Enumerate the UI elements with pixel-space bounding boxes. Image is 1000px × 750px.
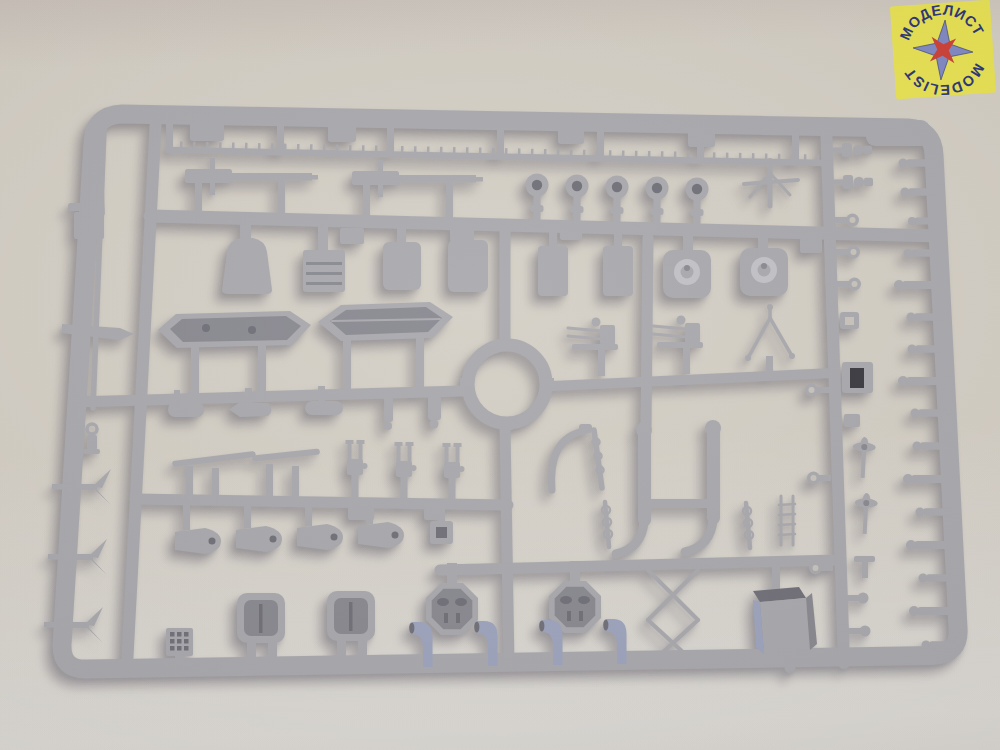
ball-capstan-pin-part xyxy=(894,280,944,290)
yardarm-part xyxy=(252,448,320,498)
ringed-signal-pole-part xyxy=(602,502,612,547)
stepped-bollard-part xyxy=(834,175,873,189)
ball-capstan-pin-part xyxy=(898,376,948,386)
eyelet-ring-part xyxy=(805,384,829,397)
gun-pedestal-mount-part xyxy=(222,218,272,294)
ladder-part xyxy=(779,496,795,545)
turret-base-with-cap-part xyxy=(740,232,788,296)
ball-capstan-pin-part xyxy=(908,345,946,354)
ring-platform-part xyxy=(460,340,554,430)
eyelet-ring-part xyxy=(835,214,859,227)
davit-pair-frame-part xyxy=(616,420,721,554)
paravane-part xyxy=(297,501,343,550)
naval-gun-barrel-part xyxy=(352,160,483,222)
runner-vertical-center-b xyxy=(505,428,509,665)
ball-capstan-pin-part xyxy=(913,442,951,451)
paravane-part xyxy=(236,503,282,552)
yardarm-part xyxy=(172,451,256,498)
twin-aa-gun-mount-part xyxy=(346,440,368,500)
twin-aa-gun-mount-part xyxy=(395,442,417,502)
propeller-on-shaft-part xyxy=(853,492,878,534)
ball-fitting-part xyxy=(845,593,869,604)
brand-sticker: МОДЕЛИСТ MODELIST xyxy=(890,0,996,101)
ball-capstan-pin-part xyxy=(922,641,960,650)
runner-vertical-left xyxy=(127,116,156,666)
runner-vertical-centerright xyxy=(646,238,648,426)
anchor-swivel-part xyxy=(83,424,100,454)
sprue-frame-group xyxy=(44,112,959,674)
torpedo-shaped-fitting-part xyxy=(384,396,441,430)
ball-fitting-part xyxy=(847,626,871,637)
sprue-illustration: МОДЕЛИСТ MODELIST xyxy=(0,0,1000,750)
gun-pedestal-mount-part xyxy=(603,230,633,296)
ringed-signal-pole-part xyxy=(743,503,753,548)
paravane-part xyxy=(175,505,221,554)
propeller-on-shaft-part xyxy=(851,436,876,478)
davit-part xyxy=(552,424,604,490)
deck-hatch-part xyxy=(327,591,375,666)
dark-hole-fitting-part xyxy=(842,362,873,393)
sprue-gate-node xyxy=(785,663,796,674)
whaleboat-part xyxy=(318,302,453,391)
small-square-fitting xyxy=(844,414,860,427)
ball-capstan-pin-part xyxy=(901,188,939,197)
turret-base-with-cap-part xyxy=(663,230,711,298)
ball-capstan-pin-part xyxy=(911,409,949,418)
twin-aa-gun-mount-part xyxy=(443,443,465,503)
aa-gun-carriage-part xyxy=(568,318,618,377)
eyelet-ring-part xyxy=(837,278,861,291)
naval-gun-barrel-part xyxy=(185,158,318,218)
ball-capstan-pin-part xyxy=(919,574,957,583)
sprue-photograph: МОДЕЛИСТ MODELIST xyxy=(0,0,1000,750)
ball-capstan-pin-part xyxy=(906,540,956,550)
ball-capstan-pin-part xyxy=(903,474,953,484)
ammunition-box-part xyxy=(303,220,345,292)
runner-main-upper xyxy=(150,216,938,236)
anchor-part xyxy=(44,607,103,643)
mooring-block-part xyxy=(68,203,104,239)
aa-gun-carriage-part xyxy=(653,316,703,375)
tripod-antenna-part xyxy=(745,304,795,376)
stepped-bollard-part xyxy=(833,143,872,157)
runner-mid-left xyxy=(74,391,462,402)
t-fitting-part xyxy=(854,556,875,578)
ball-capstan-pin-part xyxy=(909,606,959,616)
square-eyelet-part xyxy=(840,312,859,329)
eyelet-ring-part xyxy=(836,246,860,259)
ball-capstan-pin-part xyxy=(916,508,954,517)
runner-pads-lower xyxy=(348,507,440,520)
ball-capstan-pin-part xyxy=(899,159,937,168)
gun-pedestal-mount-part xyxy=(383,222,421,290)
runner-mid-right xyxy=(552,373,833,386)
open-ships-boat-part xyxy=(158,311,311,394)
ball-capstan-pin-part xyxy=(907,313,945,322)
eyelet-ring-part xyxy=(807,472,831,485)
ball-capstan-pin-part xyxy=(908,217,939,225)
ball-capstan-pin-part xyxy=(904,249,942,258)
